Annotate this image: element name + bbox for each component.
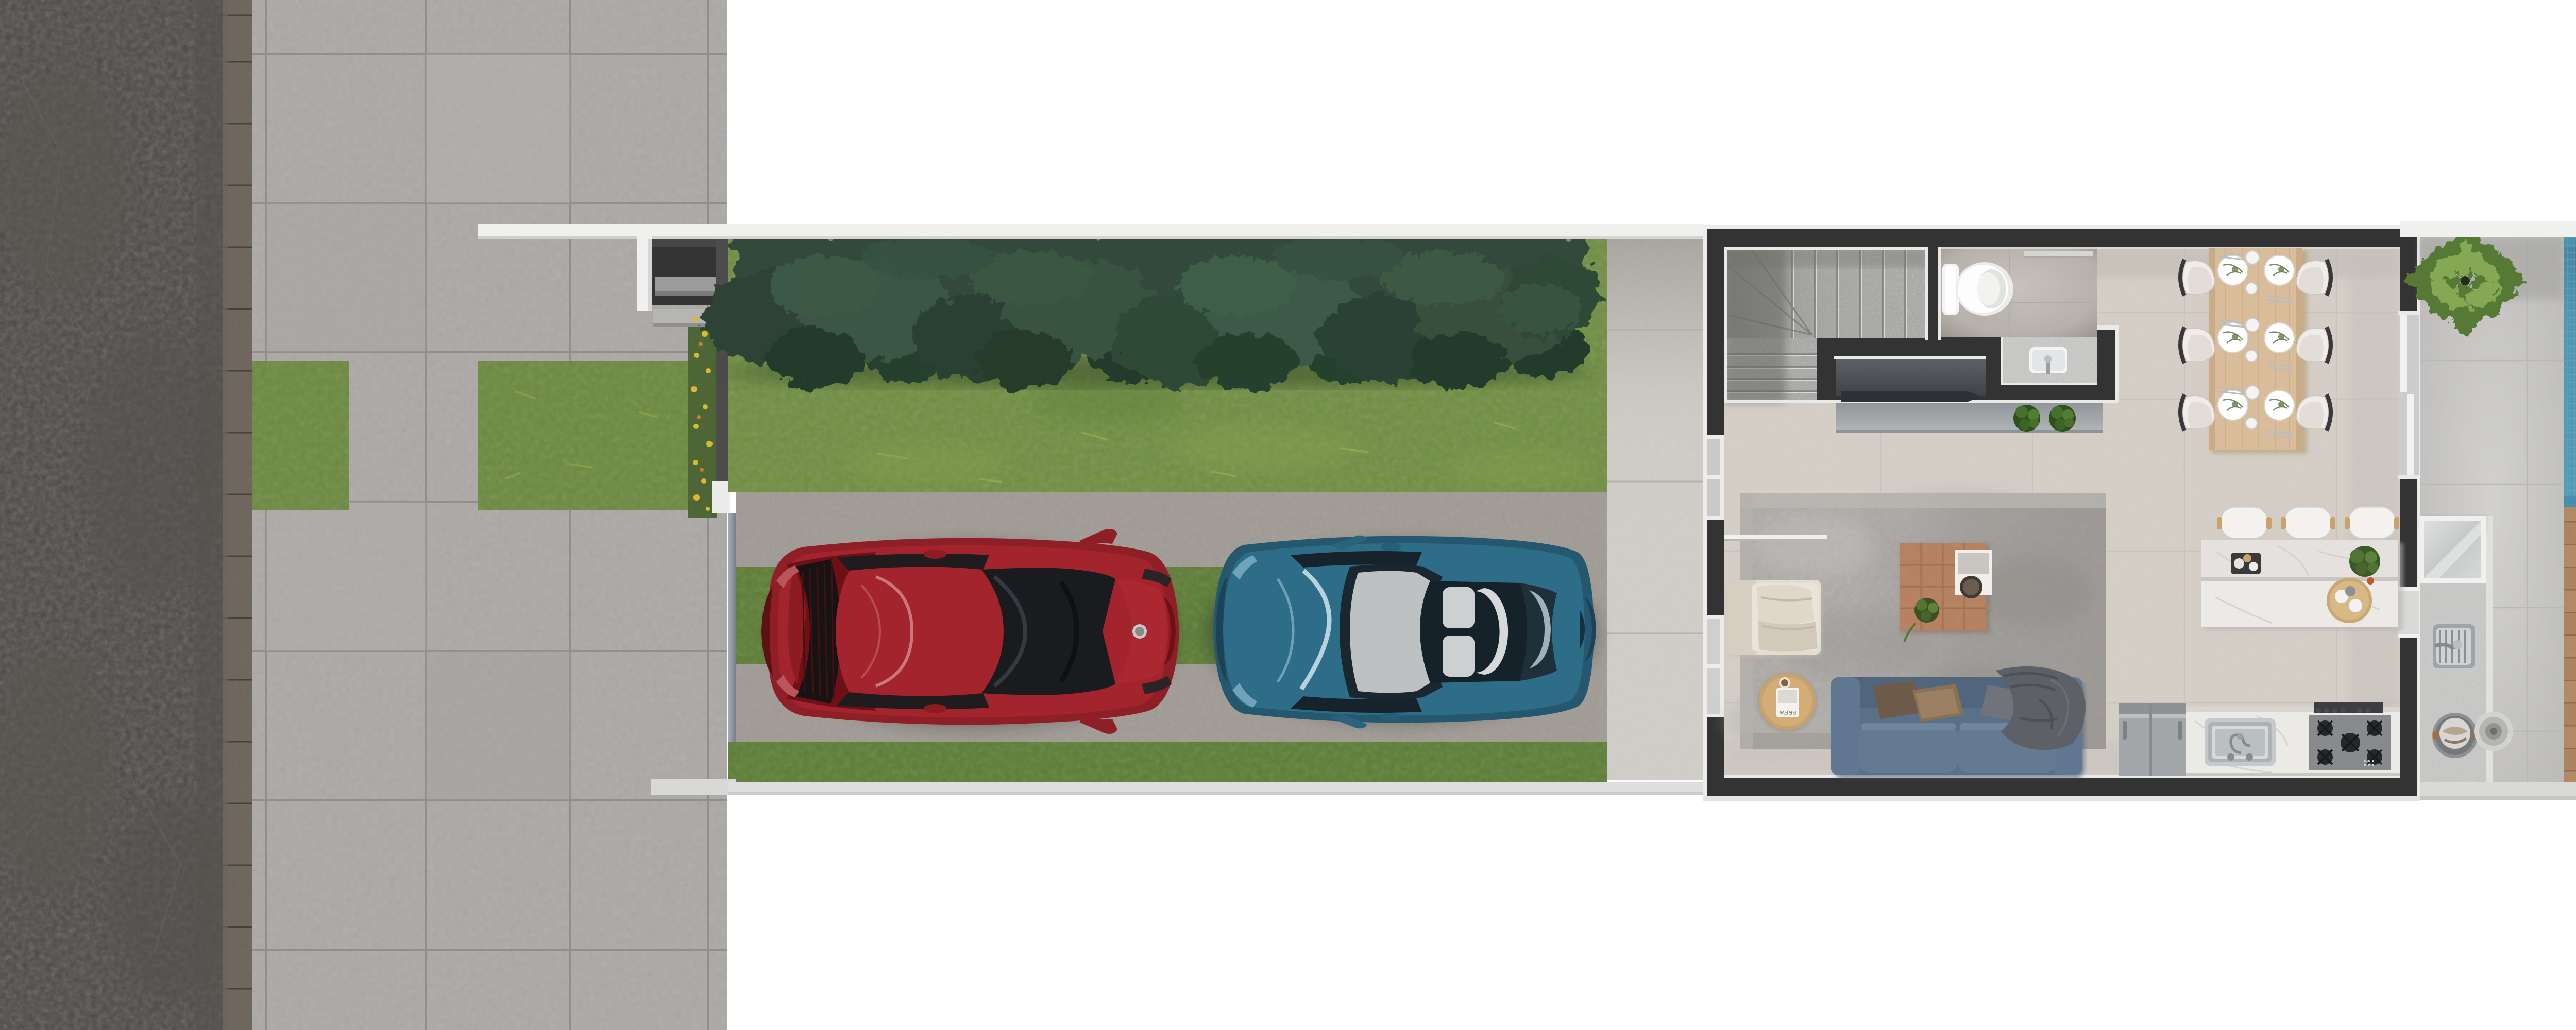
svg-text:BREW: BREW [1779, 709, 1797, 715]
